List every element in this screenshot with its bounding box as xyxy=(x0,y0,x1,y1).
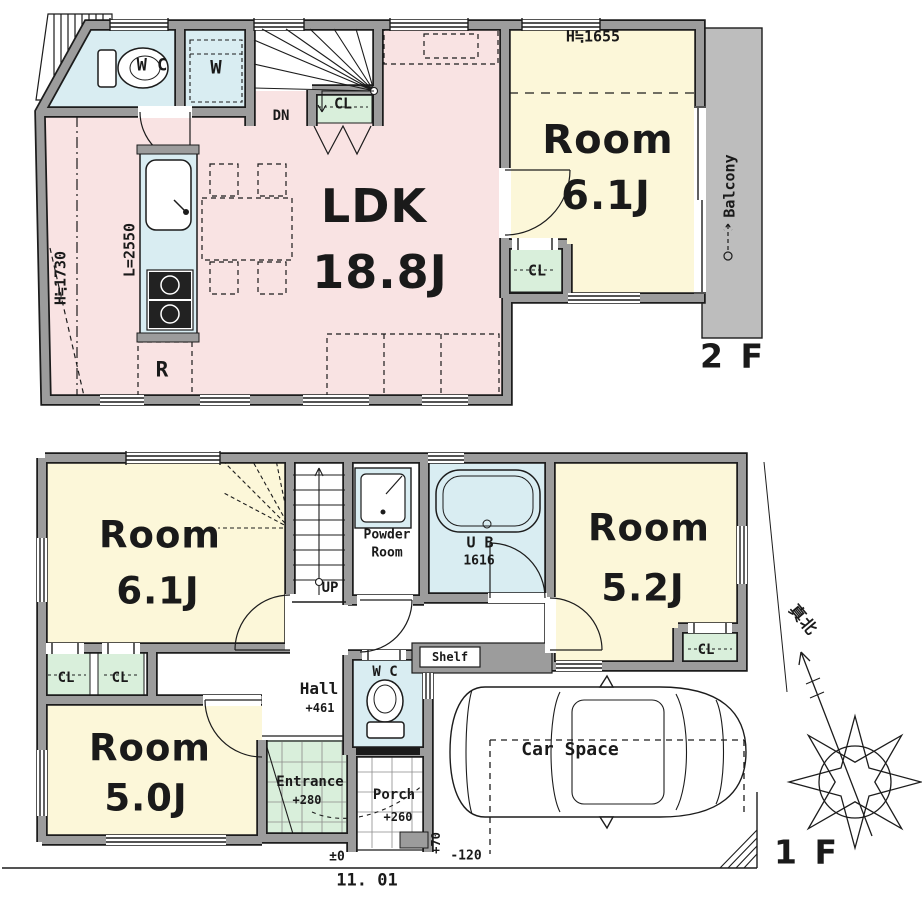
stairs-up-label: UP xyxy=(322,581,339,595)
closet2-hall-label: CL xyxy=(334,97,352,112)
room2-height-label: H≒1655 xyxy=(566,30,620,45)
porch-level-label: +260 xyxy=(384,811,413,823)
ldk-size-label: 18.8J xyxy=(312,249,448,295)
ground-level-label: ±0 xyxy=(329,851,345,864)
room2-name-label: Room xyxy=(542,120,673,160)
floor2-label: 2 F xyxy=(700,340,766,373)
shelf-label: Shelf xyxy=(432,651,468,663)
floor1-label: 1 F xyxy=(774,836,840,869)
car-space-label: Car Space xyxy=(521,741,619,759)
hall-name-label: Hall xyxy=(300,681,339,697)
site-width-label: 11. 01 xyxy=(336,873,397,890)
room1b-size-label: 5.2J xyxy=(601,570,684,607)
entrance-level-label: +280 xyxy=(293,794,322,806)
room1a-size-label: 6.1J xyxy=(116,573,199,610)
powder-line2-label: Room xyxy=(371,547,402,560)
room1c-size-label: 5.0J xyxy=(104,780,187,817)
room2-size-label: 6.1J xyxy=(561,176,651,216)
porch-name-label: Porch xyxy=(373,788,415,802)
bath-size-label: 1616 xyxy=(463,555,494,568)
ldk-name-label: LDK xyxy=(321,183,427,229)
room1b-name-label: Room xyxy=(588,510,710,547)
washer-label: W xyxy=(210,59,221,78)
step-level-label: +70 xyxy=(430,832,442,854)
stairs-down-label: DN xyxy=(273,109,290,123)
entry-door-slab xyxy=(356,748,420,755)
balcony-label: Balcony xyxy=(723,154,738,217)
left-height-label: H≒1730 xyxy=(54,251,69,305)
room1c-name-label: Room xyxy=(89,730,211,767)
closet2-room-label: CL xyxy=(528,264,546,279)
ub-floor xyxy=(428,462,550,598)
powder-line1-label: Powder xyxy=(364,529,411,542)
toilet1-icon xyxy=(367,680,404,738)
refrigerator-label: R xyxy=(156,360,169,381)
kitchen-length-label: L=2550 xyxy=(123,223,138,277)
stairs2-floor xyxy=(252,27,378,91)
kitchen-icon xyxy=(137,145,199,342)
powder-sink-icon xyxy=(355,468,411,528)
car-level-label: -120 xyxy=(450,850,481,863)
closet1rb-label: CL xyxy=(698,643,715,657)
room1a-name-label: Room xyxy=(99,517,221,554)
closet1a-label: CL xyxy=(58,671,75,685)
bath-name-label: U B xyxy=(466,536,493,551)
wc2-label: W C xyxy=(137,58,168,75)
hall-level-label: +461 xyxy=(306,702,335,714)
wc1-label: W C xyxy=(372,665,397,679)
porch-step xyxy=(400,832,428,848)
closet1b-label: CL xyxy=(112,671,129,685)
entrance-name-label: Entrance xyxy=(276,775,343,789)
floorplan-page: W C W DN CL LDK 18.8J L=2550 H≒1730 R Ro… xyxy=(0,0,922,900)
